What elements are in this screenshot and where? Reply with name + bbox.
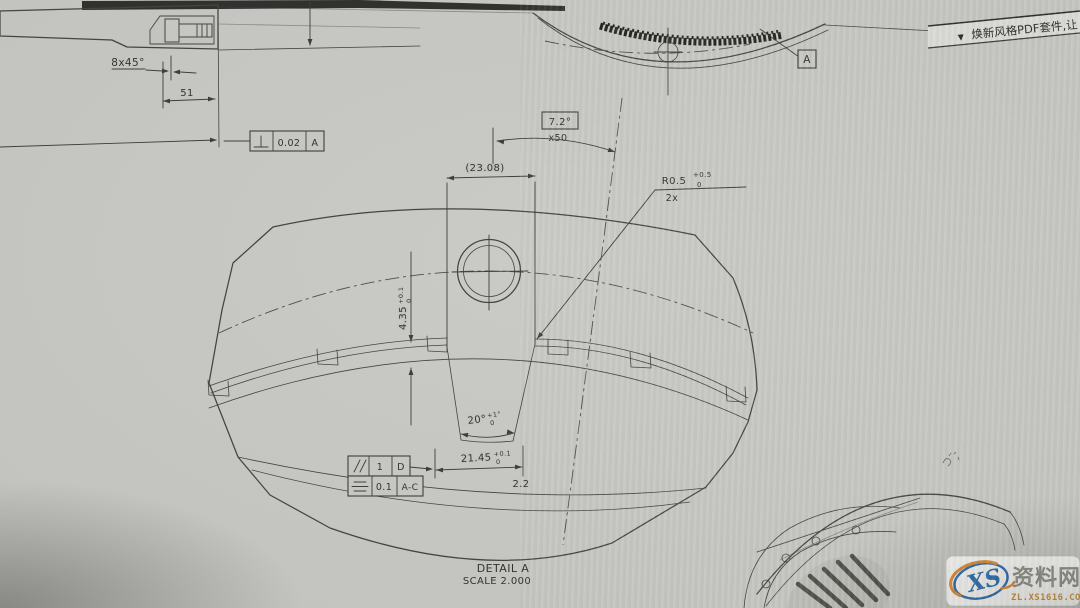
arrowhead xyxy=(163,99,170,104)
arrowhead xyxy=(308,39,313,46)
reference-dim-label: (23.08) xyxy=(465,163,504,174)
leader-line xyxy=(146,70,162,71)
tooth-notch xyxy=(630,352,651,368)
arrowhead xyxy=(210,138,217,143)
radius-count: 2x xyxy=(666,193,678,204)
leader-line xyxy=(537,190,655,339)
detail-outline xyxy=(209,209,757,561)
dim-line xyxy=(436,467,522,470)
length-dim-label: 51 xyxy=(180,88,194,99)
perpendicularity-frame: 0.02 A xyxy=(250,131,324,151)
collapse-icon[interactable]: ▼ xyxy=(957,32,965,42)
arrowhead xyxy=(426,467,433,472)
arrowhead xyxy=(497,139,505,145)
watermark: XS 资料网 ZL.XS1616.COM xyxy=(946,555,1080,606)
frame-datum: A xyxy=(312,138,319,149)
cad-drawing-photo: 8x45° 51 xyxy=(0,0,1080,608)
detail-title: DETAIL A xyxy=(477,562,529,575)
radius-tol-lower: 0 xyxy=(697,181,702,189)
depth-tol-upper: +0.1 xyxy=(397,287,405,304)
band-top-edge xyxy=(535,339,748,398)
groove-angle-tol-lower: 0 xyxy=(490,419,495,427)
depth-value: 4.35 xyxy=(398,306,409,330)
part-right-face-line xyxy=(218,5,219,147)
groove-angle-tol-upper: +1° xyxy=(487,410,502,420)
rim-right-edge xyxy=(1004,524,1015,550)
groove-width-tol-upper: +0.1 xyxy=(493,449,511,458)
watermark-site-url: ZL.XS1616.COM xyxy=(1011,593,1080,603)
detail-scale: SCALE 2.000 xyxy=(463,576,531,587)
dim-line xyxy=(163,99,215,101)
arrowhead xyxy=(409,335,414,342)
chamfer-dim-label: 8x45° xyxy=(111,57,145,69)
frame-value: 0.02 xyxy=(278,138,301,149)
rim-arc-inner xyxy=(538,18,828,68)
toolbar[interactable]: ▼ 焕新风格PDF套件,让 xyxy=(928,11,1080,48)
groove-width-tol-lower: 0 xyxy=(496,458,501,466)
arrowhead xyxy=(447,176,454,181)
center-hole xyxy=(452,235,528,310)
dim-line xyxy=(0,140,216,147)
frame-datum: A-C xyxy=(402,483,419,493)
groove-width-dimension: 21.45 +0.1 0 xyxy=(435,446,523,478)
parallelism-frame: 1 D xyxy=(348,456,433,476)
pitch-angle-value: 7.2° xyxy=(549,117,572,128)
arrowhead xyxy=(436,468,443,473)
pitch-angle-dimension: 7.2° x50 xyxy=(493,112,616,170)
datum-surface-line xyxy=(219,46,420,50)
watermark-site-name: 资料网 xyxy=(1012,566,1080,591)
drum-tangent-line xyxy=(757,498,920,552)
dim-arc xyxy=(461,433,514,437)
groove-angle-value: 20° xyxy=(467,414,487,427)
frame-datum: D xyxy=(397,462,405,473)
bolt-head xyxy=(165,19,179,42)
pen-scribble xyxy=(943,452,959,466)
engineering-drawing: 8x45° 51 xyxy=(0,0,1080,608)
radius-tol-upper: +0.5 xyxy=(693,171,712,179)
rim-line xyxy=(825,25,935,31)
front-face-shade xyxy=(770,538,905,608)
arrowhead xyxy=(208,97,215,102)
arrowhead xyxy=(515,465,522,470)
groove-left-flank xyxy=(447,347,461,440)
datum-dimension xyxy=(0,138,250,147)
depth-tol-lower: 0 xyxy=(405,298,413,303)
symmetry-frame: 0.1 A-C xyxy=(348,476,423,496)
serration-band-detail xyxy=(208,336,748,420)
chamfer-dimension: 8x45° xyxy=(111,56,196,80)
slanted-centerline xyxy=(563,98,622,545)
frame-value: 0.1 xyxy=(376,482,392,493)
arrowhead xyxy=(528,174,535,179)
parent-view: A xyxy=(533,13,935,95)
detail-callout: A xyxy=(760,29,816,68)
radius-value: R0.5 xyxy=(662,176,686,187)
bolt-hole xyxy=(762,580,770,588)
groove-right-flank xyxy=(513,344,535,441)
arrowhead xyxy=(173,70,180,75)
depth-dimension: 4.35 +0.1 0 xyxy=(397,252,413,425)
groove-width-value: 21.45 xyxy=(461,452,492,465)
gap-dim-label: 2.2 xyxy=(512,479,529,490)
dim-line xyxy=(447,176,535,178)
radius-dimension: R0.5 +0.5 0 2x xyxy=(535,171,746,340)
section-view: 8x45° 51 xyxy=(0,0,565,151)
flange-edge-line xyxy=(219,24,420,28)
groove-bottom xyxy=(461,440,513,442)
lower-step-arc xyxy=(252,470,690,511)
rim-right-edge xyxy=(1010,512,1024,545)
callout-letter: A xyxy=(803,54,811,66)
detail-view: 7.2° x50 (23.08) R0.5 +0.5 0 2x xyxy=(208,98,757,587)
groove-angle-dimension: 20° +1° 0 xyxy=(461,410,515,438)
leader-line xyxy=(180,72,196,73)
reference-dimension: (23.08) xyxy=(447,163,535,347)
arrowhead xyxy=(409,368,414,375)
frame-value: 1 xyxy=(377,462,383,473)
